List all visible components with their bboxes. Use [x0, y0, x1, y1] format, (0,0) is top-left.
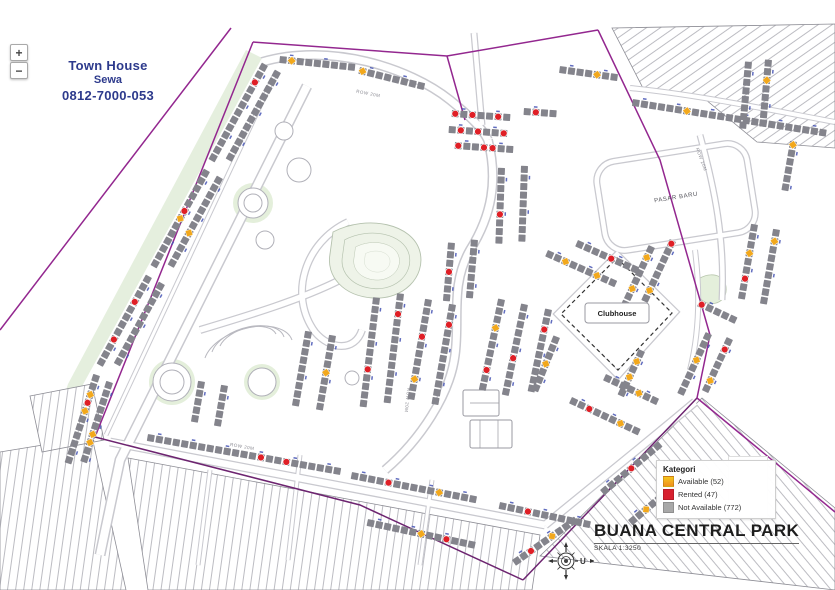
house-unit: [383, 523, 391, 531]
house-unit: [703, 332, 712, 341]
house-unit: [302, 339, 310, 347]
house-unit: [446, 260, 454, 268]
legend-item: Not Available (772): [663, 502, 769, 513]
available-marker[interactable]: [542, 360, 550, 368]
house-unit: [296, 58, 304, 66]
house-unit: [497, 299, 505, 307]
house-unit: [366, 348, 374, 356]
unit-number-tick: [604, 70, 608, 72]
house-unit: [325, 352, 333, 360]
unit-number-tick: [305, 376, 307, 380]
house-unit: [201, 198, 211, 208]
house-unit: [460, 493, 468, 501]
unit-number-tick: [143, 324, 146, 328]
rented-marker[interactable]: [455, 142, 462, 149]
rented-marker[interactable]: [109, 335, 118, 344]
available-marker[interactable]: [185, 229, 193, 237]
house-unit: [401, 482, 409, 490]
house-unit: [97, 357, 107, 367]
house-unit: [544, 351, 553, 360]
unit-number-tick: [379, 308, 381, 312]
house-unit: [305, 59, 313, 67]
rented-marker[interactable]: [452, 110, 459, 117]
available-marker[interactable]: [643, 506, 650, 513]
rented-marker[interactable]: [532, 109, 539, 116]
unit-number-tick: [504, 212, 506, 216]
house-unit: [685, 371, 694, 380]
rented-marker[interactable]: [469, 111, 476, 118]
unit-number-tick: [259, 451, 263, 453]
house-unit: [576, 68, 584, 76]
house-unit: [725, 114, 733, 122]
unit-number-tick: [534, 106, 538, 108]
house-unit: [802, 126, 810, 134]
house-unit: [608, 415, 617, 424]
unit-number-tick: [204, 181, 207, 185]
zoom-control: + −: [10, 44, 28, 79]
house-unit: [323, 360, 331, 368]
house-row: [524, 105, 557, 117]
legend-item: Available (52): [663, 476, 769, 487]
house-unit: [351, 472, 359, 480]
house-unit: [787, 149, 795, 157]
available-marker[interactable]: [549, 533, 556, 540]
available-marker[interactable]: [625, 373, 633, 381]
house-unit: [518, 235, 525, 242]
unit-number-tick: [496, 343, 498, 347]
house-unit: [138, 282, 148, 292]
house-unit: [592, 408, 601, 417]
unit-number-tick: [146, 287, 149, 291]
house-unit: [254, 70, 264, 80]
unit-number-tick: [527, 210, 529, 214]
house-unit: [785, 123, 793, 131]
zoom-in-button[interactable]: +: [10, 44, 28, 61]
house-unit: [413, 358, 421, 366]
unit-number-tick: [671, 251, 674, 255]
available-marker[interactable]: [616, 419, 624, 427]
house-unit: [466, 127, 473, 134]
rented-marker[interactable]: [250, 78, 259, 87]
unit-number-tick: [543, 509, 547, 511]
house-unit: [583, 243, 592, 252]
house-unit: [460, 111, 467, 118]
house-unit: [602, 72, 610, 80]
unit-number-tick: [229, 135, 232, 139]
house-unit: [497, 176, 504, 183]
available-marker[interactable]: [635, 389, 643, 397]
unit-number-tick: [159, 294, 162, 298]
house-unit: [419, 324, 427, 332]
house-row: [759, 229, 782, 305]
unit-number-tick: [395, 372, 397, 376]
house-unit: [418, 485, 426, 493]
house-unit: [551, 335, 560, 344]
unit-number-tick: [275, 82, 278, 86]
house-unit: [761, 94, 769, 102]
available-marker[interactable]: [435, 488, 444, 497]
house-unit: [371, 306, 379, 314]
house-unit: [220, 385, 228, 393]
house-unit: [293, 390, 301, 398]
house-unit: [793, 125, 801, 133]
house-unit: [367, 340, 375, 348]
house-unit: [533, 359, 541, 367]
house-unit: [531, 367, 539, 375]
house-unit: [520, 192, 527, 199]
house-unit: [496, 228, 503, 235]
house-unit: [575, 240, 584, 249]
house-unit: [747, 241, 755, 249]
house-unit: [691, 108, 699, 116]
house-unit: [331, 61, 339, 69]
house-unit: [591, 247, 600, 256]
house-unit: [184, 199, 194, 209]
house-unit: [577, 264, 586, 273]
house-unit: [150, 259, 160, 269]
house-unit: [674, 106, 682, 114]
rented-marker[interactable]: [480, 144, 487, 151]
map-title: BUANA CENTRAL PARK: [594, 521, 799, 544]
house-unit: [466, 291, 474, 299]
house-unit: [213, 145, 223, 155]
unit-number-tick: [489, 377, 491, 381]
house-unit: [638, 261, 647, 270]
house-row: [478, 298, 508, 391]
legend: Kategori Available (52)Rented (47)Not Av…: [656, 460, 776, 519]
unit-number-tick: [465, 140, 469, 142]
unit-number-tick: [796, 152, 798, 156]
house-unit: [279, 56, 287, 64]
house-unit: [490, 332, 498, 340]
legend-swatch-icon: [663, 489, 674, 500]
house-unit: [292, 399, 300, 407]
house-unit: [231, 449, 239, 457]
unit-number-tick: [493, 126, 497, 128]
house-unit: [299, 356, 307, 364]
unit-number-tick: [455, 253, 457, 257]
house-unit: [642, 392, 651, 401]
house-unit: [99, 397, 108, 406]
unit-number-tick: [188, 211, 191, 215]
house-unit: [631, 426, 640, 435]
house-unit: [422, 307, 430, 315]
house-unit: [181, 440, 189, 448]
unit-number-tick: [403, 304, 405, 308]
house-unit: [483, 128, 490, 135]
house-unit: [242, 93, 252, 103]
house-unit: [750, 224, 758, 232]
available-marker[interactable]: [322, 368, 331, 377]
rented-marker[interactable]: [496, 211, 503, 218]
road-width-label: ROW 20M: [356, 89, 381, 99]
house-unit: [214, 419, 222, 427]
house-row: [407, 299, 435, 401]
house-unit: [209, 183, 219, 193]
house-unit: [117, 320, 127, 330]
unit-number-tick: [362, 471, 366, 473]
house-unit: [387, 370, 395, 378]
house-unit: [763, 280, 771, 288]
house-unit: [520, 183, 527, 190]
house-unit: [444, 490, 452, 498]
house-unit: [448, 304, 456, 312]
house-unit: [769, 246, 777, 254]
house-unit: [744, 61, 752, 69]
unit-number-tick: [512, 382, 514, 386]
house-unit: [535, 351, 543, 359]
legend-title: Kategori: [663, 465, 769, 474]
rented-marker[interactable]: [500, 130, 507, 137]
house-unit: [650, 396, 659, 405]
house-unit: [393, 480, 401, 488]
house-unit: [541, 511, 549, 519]
house-unit: [205, 191, 215, 201]
title-block: BUANA CENTRAL PARK SKALA 1:3250: [594, 521, 819, 552]
available-marker[interactable]: [358, 67, 367, 76]
unit-number-tick: [452, 287, 454, 291]
house-unit: [365, 357, 373, 365]
house-unit: [632, 99, 640, 107]
house-unit: [392, 524, 400, 532]
townhouse-ad: Town House Sewa 0812-7000-053: [38, 58, 178, 103]
house-unit: [491, 129, 498, 136]
house-unit: [599, 250, 608, 259]
house-unit: [316, 464, 324, 472]
house-unit: [656, 262, 665, 271]
house-unit: [142, 275, 152, 285]
house-unit: [339, 62, 347, 70]
house-unit: [188, 221, 198, 231]
house-unit: [102, 389, 111, 398]
house-unit: [739, 283, 747, 291]
house-unit: [657, 103, 665, 111]
house-unit: [481, 374, 489, 382]
unit-number-tick: [711, 109, 715, 111]
house-unit: [659, 255, 668, 264]
unit-number-tick: [158, 433, 162, 435]
rented-marker[interactable]: [130, 297, 139, 306]
house-unit: [713, 360, 722, 369]
unit-number-tick: [327, 463, 331, 465]
available-marker[interactable]: [176, 215, 184, 223]
available-marker[interactable]: [706, 377, 714, 385]
unit-number-tick: [519, 348, 521, 352]
unit-number-tick: [113, 347, 116, 351]
house-unit: [412, 367, 420, 375]
house-unit: [442, 338, 450, 346]
house-unit: [427, 487, 435, 495]
unit-number-tick: [396, 478, 400, 480]
house-unit: [497, 202, 504, 209]
house-unit: [497, 194, 504, 201]
house-unit: [434, 380, 442, 388]
house-unit: [532, 509, 540, 517]
house-unit: [739, 121, 747, 129]
unit-number-tick: [657, 283, 660, 287]
house-unit: [538, 334, 546, 342]
available-marker[interactable]: [561, 258, 569, 266]
rented-marker[interactable]: [457, 127, 464, 134]
road-width-label: ROW 20M: [404, 388, 412, 413]
house-unit: [221, 130, 231, 140]
unit-number-tick: [577, 516, 581, 518]
house-unit: [388, 361, 396, 369]
house-unit: [544, 309, 552, 317]
unit-number-tick: [311, 342, 313, 346]
house-unit: [395, 302, 403, 310]
house-unit: [444, 285, 452, 293]
house-unit: [225, 123, 235, 133]
house-unit: [91, 374, 100, 383]
house-unit: [741, 104, 749, 112]
amphitheater-arcs: [205, 326, 292, 358]
unit-number-tick: [419, 378, 421, 382]
rented-marker[interactable]: [180, 206, 189, 215]
unit-number-tick: [556, 347, 559, 351]
house-unit: [449, 126, 456, 133]
rented-marker[interactable]: [720, 345, 729, 354]
unit-number-tick: [329, 380, 331, 384]
available-marker[interactable]: [491, 324, 500, 333]
unit-number-tick: [478, 250, 480, 254]
house-unit: [147, 434, 155, 442]
house-unit: [541, 109, 548, 116]
available-marker[interactable]: [410, 375, 419, 384]
unit-number-tick: [371, 376, 373, 380]
unit-number-tick: [557, 252, 561, 255]
legend-item-label: Rented (47): [678, 490, 718, 499]
house-unit: [504, 379, 512, 387]
house-unit: [559, 66, 567, 74]
unit-number-tick: [728, 349, 731, 353]
house-unit: [519, 209, 526, 216]
house-unit: [229, 115, 239, 125]
house-unit: [762, 85, 770, 93]
available-marker[interactable]: [770, 237, 779, 246]
unit-number-tick: [192, 439, 196, 441]
house-unit: [537, 342, 545, 350]
house-unit: [741, 96, 749, 104]
rented-marker[interactable]: [585, 404, 594, 413]
house-unit: [193, 213, 203, 223]
house-unit: [557, 515, 565, 523]
unit-number-tick: [431, 310, 433, 314]
house-unit: [424, 299, 432, 307]
house-unit: [640, 100, 648, 108]
house-unit: [295, 382, 303, 390]
house-unit: [391, 336, 399, 344]
house-unit: [624, 422, 633, 431]
house-unit: [372, 297, 380, 305]
house-unit: [367, 519, 375, 527]
house-unit: [233, 108, 243, 118]
house-unit: [470, 239, 478, 247]
house-unit: [240, 450, 248, 458]
house-unit: [446, 312, 454, 320]
house-unit: [326, 343, 334, 351]
house-row: [781, 140, 800, 192]
house-unit: [139, 312, 149, 322]
house-unit: [195, 389, 203, 397]
rented-marker[interactable]: [474, 128, 481, 135]
house-unit: [328, 335, 336, 343]
house-unit: [368, 331, 376, 339]
house-unit: [400, 526, 408, 534]
house-unit: [421, 316, 429, 324]
unit-number-tick: [293, 457, 297, 459]
rented-marker[interactable]: [495, 113, 502, 120]
house-unit: [101, 350, 111, 360]
house-unit: [507, 504, 515, 512]
house-unit: [681, 379, 690, 388]
house-unit: [705, 304, 714, 313]
unit-number-tick: [97, 386, 100, 390]
house-unit: [709, 368, 718, 377]
unit-number-tick: [570, 65, 574, 67]
house-unit: [677, 387, 686, 396]
zoom-out-button[interactable]: −: [10, 62, 28, 79]
house-unit: [208, 153, 218, 163]
house-unit: [415, 350, 423, 358]
unit-number-tick: [459, 124, 463, 126]
house-unit: [425, 532, 433, 540]
house-unit: [319, 386, 327, 394]
unit-number-tick: [246, 105, 249, 109]
rented-marker[interactable]: [445, 268, 452, 275]
house-unit: [507, 362, 515, 370]
house-unit: [495, 237, 502, 244]
house-unit: [479, 383, 487, 391]
house-unit: [499, 502, 507, 510]
house-unit: [114, 357, 124, 367]
house-unit: [126, 305, 136, 315]
house-unit: [495, 307, 503, 315]
legend-item: Rented (47): [663, 489, 769, 500]
available-marker[interactable]: [745, 249, 754, 258]
house-unit: [545, 250, 554, 259]
unit-number-tick: [677, 103, 681, 105]
house-unit: [320, 377, 328, 385]
unit-number-tick: [462, 108, 466, 110]
unit-number-tick: [587, 242, 591, 245]
rented-marker[interactable]: [489, 145, 496, 152]
house-unit: [748, 232, 756, 240]
compass-north-label: U: [580, 557, 586, 566]
house-unit: [740, 113, 748, 121]
unit-number-tick: [425, 344, 427, 348]
house-unit: [810, 127, 818, 135]
house-unit: [113, 327, 123, 337]
legend-swatch-icon: [663, 476, 674, 487]
unit-number-tick: [769, 104, 771, 108]
unit-number-tick: [399, 338, 401, 342]
house-unit: [459, 539, 467, 547]
house-unit: [410, 483, 418, 491]
available-marker[interactable]: [643, 254, 651, 262]
house-unit: [549, 513, 557, 521]
house-unit: [744, 70, 752, 78]
clubhouse-label: Clubhouse: [585, 303, 649, 323]
house-unit: [386, 379, 394, 387]
house-unit: [191, 415, 199, 423]
house-row: [292, 331, 315, 407]
house-unit: [497, 145, 504, 152]
house-unit: [663, 247, 672, 256]
house-unit: [105, 342, 115, 352]
house-unit: [472, 143, 479, 150]
house-row: [518, 166, 530, 242]
